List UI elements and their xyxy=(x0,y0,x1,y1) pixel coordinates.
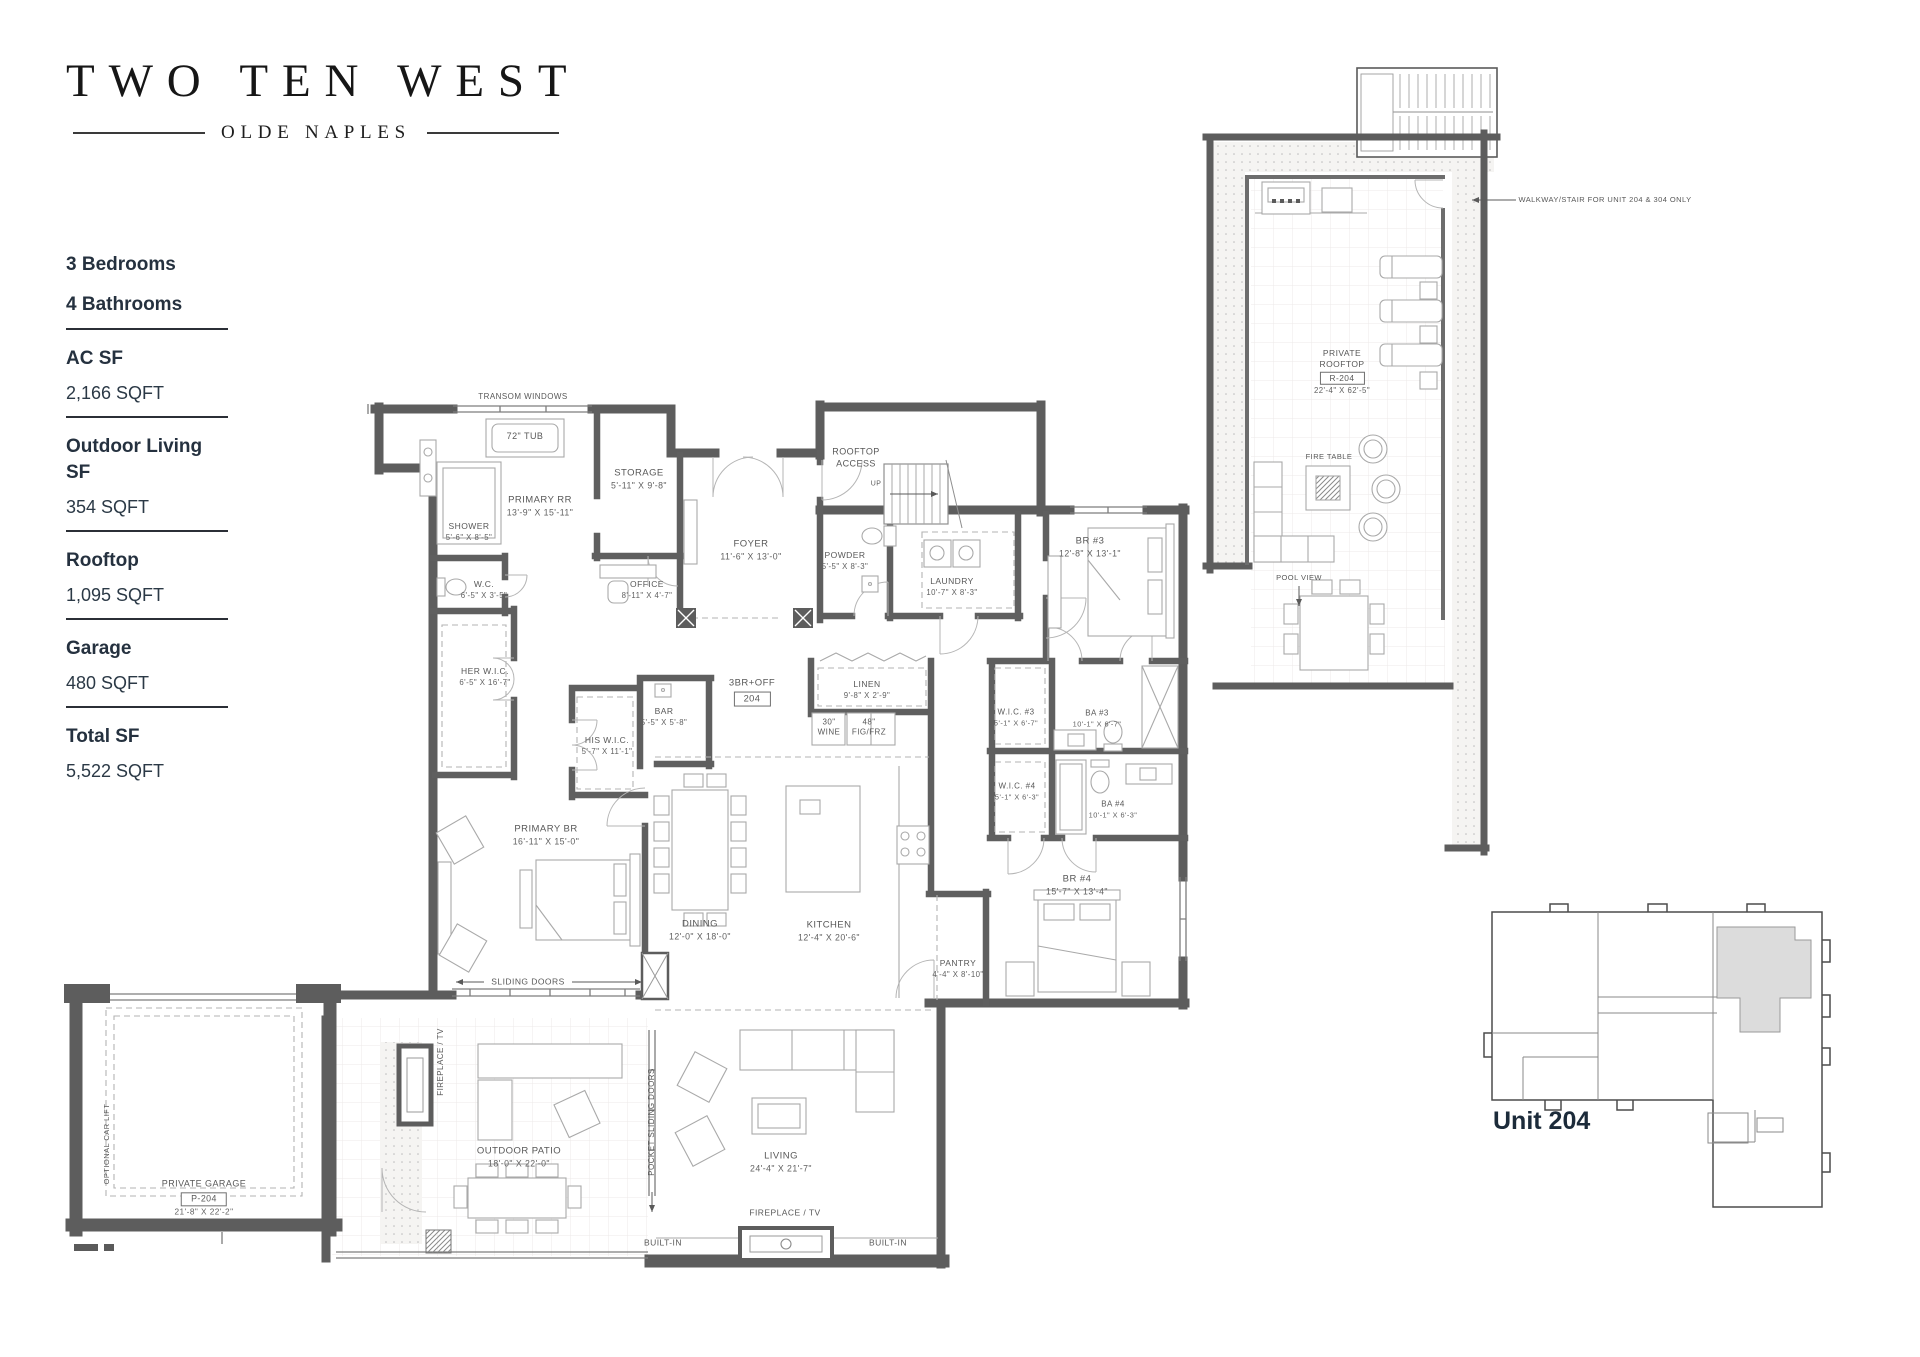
spec-item-5: Garage480 SQFT xyxy=(66,636,228,708)
spec-value: 1,095 SQFT xyxy=(66,582,228,608)
spec-label: Outdoor Living SF xyxy=(66,434,228,486)
spec-label: Total SF xyxy=(66,724,228,750)
subtitle-rule-left xyxy=(73,132,205,134)
brand-title: TWO TEN WEST xyxy=(66,54,596,108)
spec-item-4: Rooftop1,095 SQFT xyxy=(66,548,228,620)
brand-subtitle: OLDE NAPLES xyxy=(221,122,411,144)
brand-subtitle-row: OLDE NAPLES xyxy=(66,122,566,144)
spec-value: 354 SQFT xyxy=(66,494,228,520)
spec-label: 3 Bedrooms xyxy=(66,252,228,278)
spec-value: 2,166 SQFT xyxy=(66,380,228,406)
spec-item-1: 4 Bathrooms xyxy=(66,292,228,330)
spec-item-0: 3 Bedrooms xyxy=(66,252,228,278)
spec-item-2: AC SF2,166 SQFT xyxy=(66,346,228,418)
spec-value: 5,522 SQFT xyxy=(66,758,228,784)
spec-label: Garage xyxy=(66,636,228,662)
key-plan-unit-label: Unit 204 xyxy=(1493,1107,1590,1136)
spec-item-3: Outdoor Living SF354 SQFT xyxy=(66,434,228,532)
spec-list: 3 Bedrooms4 BathroomsAC SF2,166 SQFTOutd… xyxy=(66,252,228,798)
key-plan xyxy=(1484,904,1830,1207)
spec-label: 4 Bathrooms xyxy=(66,292,228,318)
brochure-page: TRANSOM WINDOWS72" TUBPRIMARY RR13'-9" X… xyxy=(0,0,1920,1357)
brand-logo: TWO TEN WEST OLDE NAPLES xyxy=(66,54,596,144)
floorplan-linework xyxy=(0,0,1920,1357)
subtitle-rule-right xyxy=(427,132,559,134)
spec-label: AC SF xyxy=(66,346,228,372)
spec-value: 480 SQFT xyxy=(66,670,228,696)
spec-item-6: Total SF5,522 SQFT xyxy=(66,724,228,784)
spec-label: Rooftop xyxy=(66,548,228,574)
stairs-up xyxy=(884,460,962,528)
